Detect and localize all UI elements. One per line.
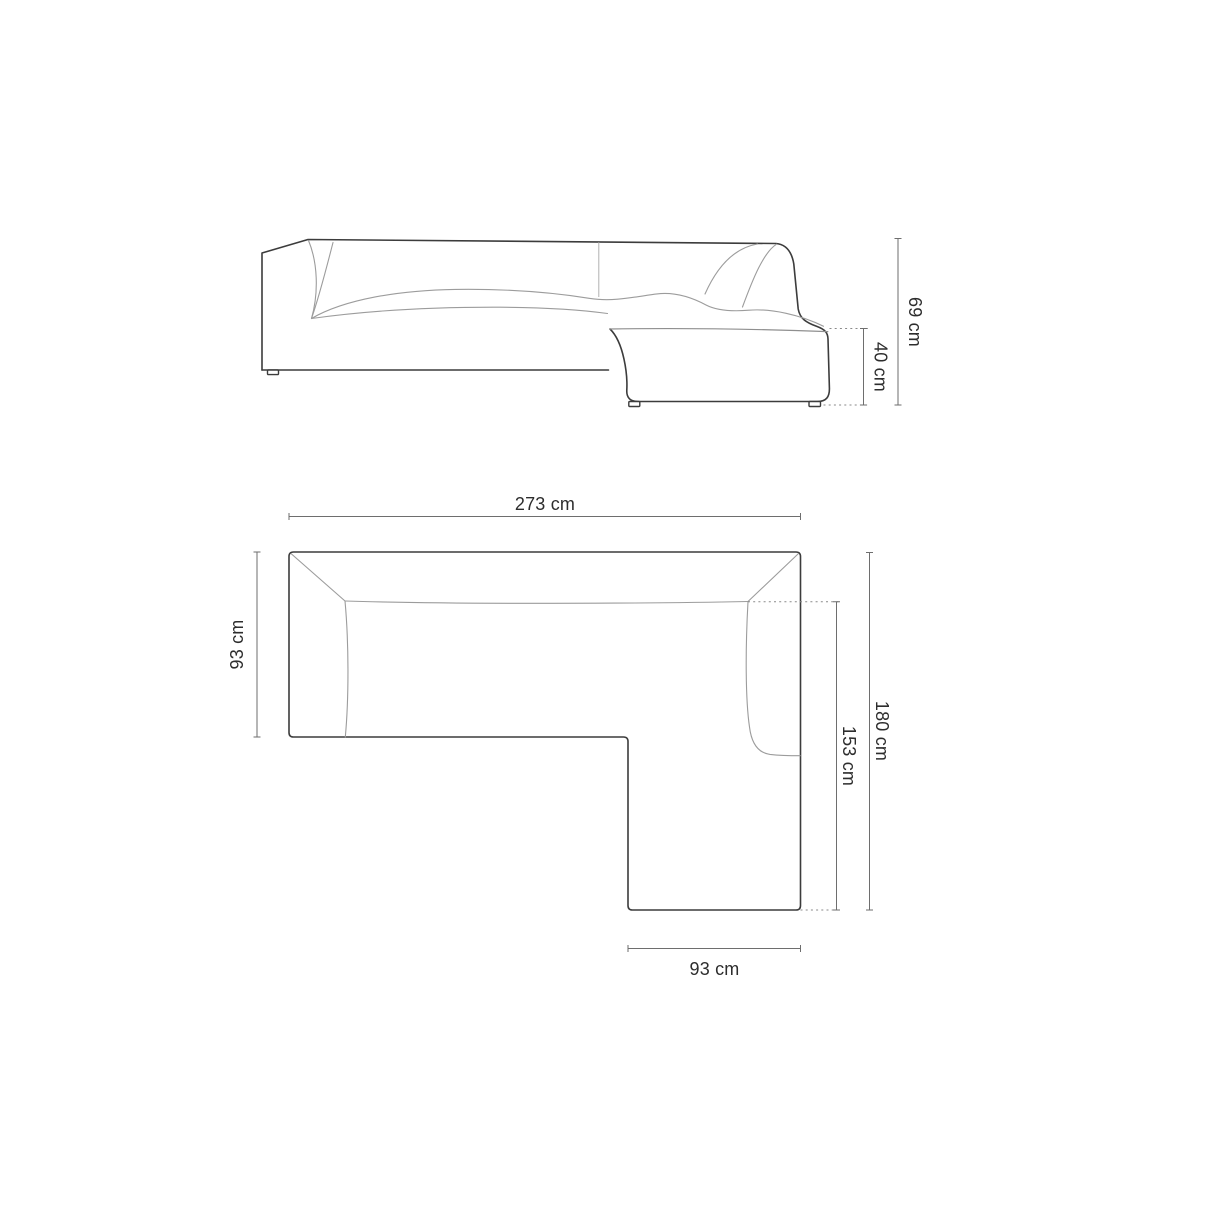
sofa-depth-dimension-line (254, 552, 261, 737)
chaise-width-label: 93 cm (689, 959, 739, 979)
plan-dimension-chaise-width: 93 cm (628, 945, 801, 979)
seat-height-label: 40 cm (871, 342, 891, 392)
plan-backrest-inner-line (345, 601, 748, 603)
plan-dimension-sofa-depth: 93 cm (227, 552, 260, 737)
plan-view: 273 cm 93 cm 180 cm 153 cm 93 cm (227, 494, 892, 979)
elevation-armrest-curve-inner (312, 243, 334, 319)
elevation-dimension-seat-height: 40 cm (824, 329, 891, 406)
total-side-label: 180 cm (872, 701, 892, 761)
elevation-foot-left (268, 370, 279, 375)
chaise-side-dimension-line (833, 602, 840, 910)
total-width-label: 273 cm (515, 494, 575, 514)
elevation-dimension-total-height: 69 cm (895, 239, 926, 406)
plan-corner-seam-right (748, 554, 798, 602)
total-width-dimension-line (289, 513, 801, 520)
plan-dimension-total-side: 180 cm (866, 553, 892, 911)
elevation-chaise-front-edge (610, 329, 828, 332)
chaise-side-label: 153 cm (839, 726, 859, 786)
elevation-back-cushion-outer (705, 244, 758, 294)
total-height-label: 69 cm (905, 297, 925, 347)
elevation-view: 69 cm 40 cm (262, 239, 925, 407)
total-side-dimension-line (866, 553, 873, 911)
elevation-back-cushion-inner (743, 244, 777, 307)
elevation-foot-chaise-right (809, 402, 821, 407)
sofa-depth-label: 93 cm (227, 619, 247, 669)
plan-dimension-total-width: 273 cm (289, 494, 801, 520)
chaise-width-dimension-line (628, 945, 801, 952)
plan-sofa-outline (289, 552, 801, 910)
total-height-dimension-line (895, 239, 902, 406)
elevation-sofa-outline (262, 240, 829, 402)
plan-armrest-inner-curve (345, 601, 348, 737)
plan-corner-seam-left (292, 554, 346, 601)
elevation-foot-chaise-left (629, 402, 640, 407)
elevation-seat-parting-curve (312, 307, 608, 318)
seat-height-dimension-line (860, 329, 867, 406)
plan-chaise-inner-curve (746, 602, 800, 756)
sofa-dimension-diagram: 69 cm 40 cm 273 cm 93 cm (0, 0, 1214, 1214)
plan-dimension-chaise-side: 153 cm (833, 602, 859, 910)
